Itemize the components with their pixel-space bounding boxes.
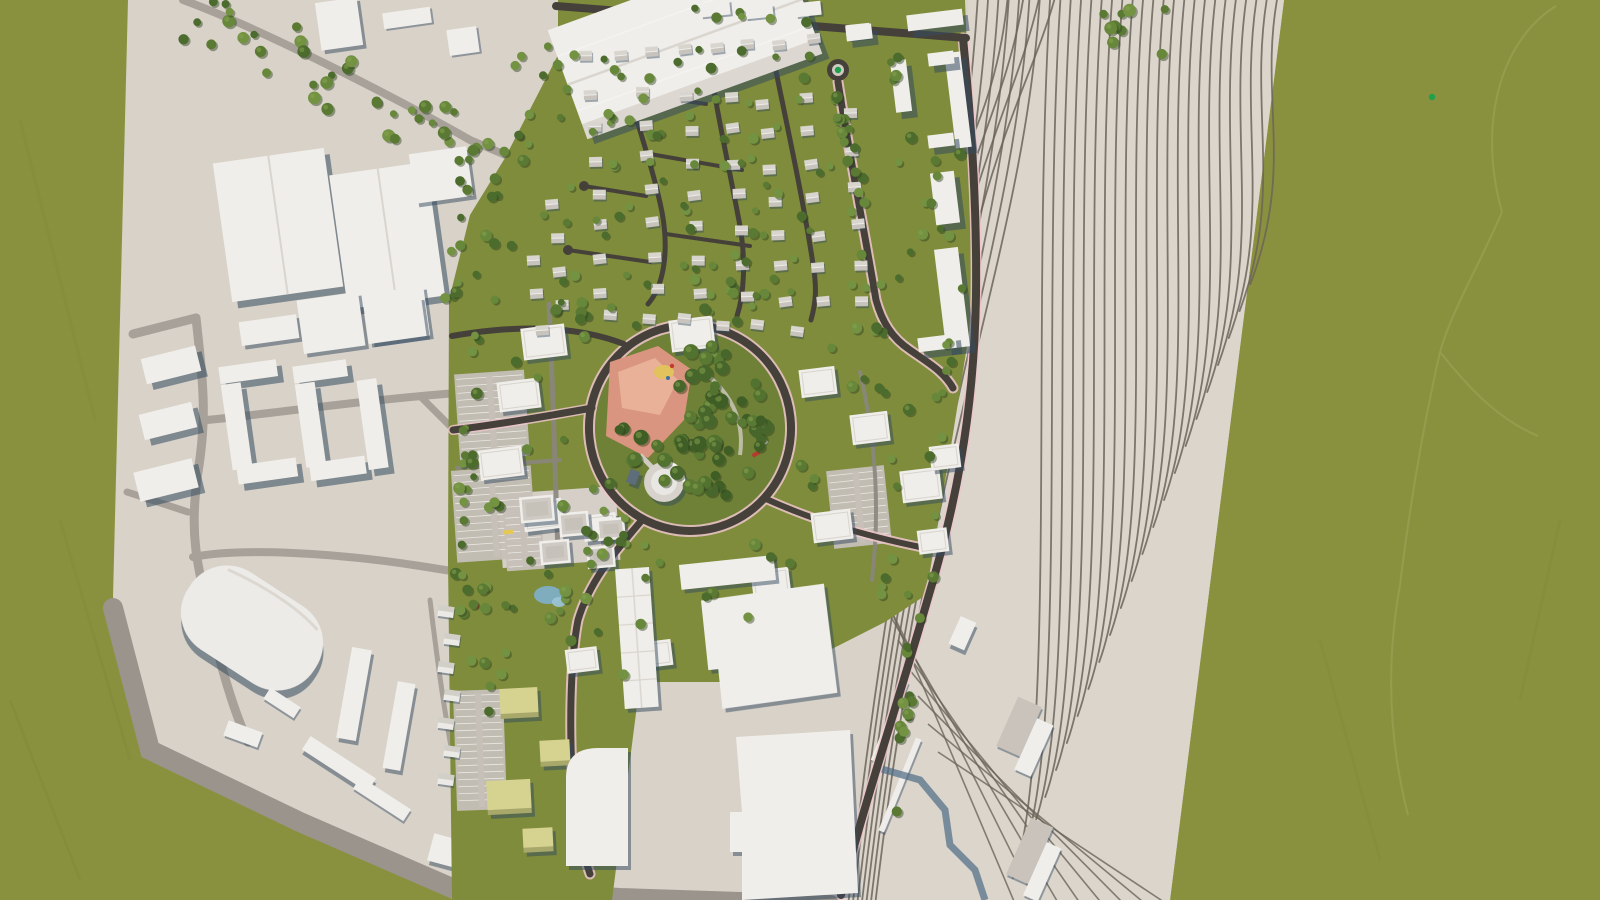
house <box>725 92 739 102</box>
notched-hall <box>730 730 858 900</box>
house <box>552 267 566 278</box>
house <box>805 192 819 203</box>
house <box>732 188 746 198</box>
grid-building <box>849 411 890 445</box>
house <box>651 284 664 294</box>
house <box>677 313 691 324</box>
house <box>648 252 662 262</box>
house <box>716 321 730 331</box>
commercial-building <box>539 539 571 566</box>
house <box>750 319 764 330</box>
grid-building <box>496 378 541 413</box>
house <box>685 126 698 136</box>
house <box>772 39 786 50</box>
house <box>645 184 659 195</box>
industrial-box <box>213 148 343 302</box>
house <box>584 90 597 100</box>
context-house <box>443 633 460 646</box>
context-house <box>443 689 460 702</box>
house <box>755 99 769 110</box>
house <box>614 50 628 61</box>
grid-building <box>899 467 943 504</box>
masterplan-viewport[interactable] <box>0 0 1600 900</box>
context-house <box>437 661 454 674</box>
house <box>854 261 867 271</box>
house <box>807 33 821 44</box>
house <box>679 91 692 101</box>
context-house <box>437 605 454 618</box>
house <box>725 122 739 133</box>
house <box>589 157 602 167</box>
house <box>816 296 830 307</box>
house <box>811 262 825 273</box>
apartment-slab <box>845 23 873 41</box>
roundabout-with-tree <box>827 59 849 81</box>
house <box>693 288 707 299</box>
house <box>771 230 784 240</box>
house <box>735 226 748 236</box>
house <box>855 296 868 306</box>
yellow-building <box>499 687 539 719</box>
context-house <box>437 773 454 786</box>
house <box>579 51 592 61</box>
house <box>800 125 814 136</box>
house <box>639 120 653 131</box>
flat-hall <box>701 583 838 710</box>
house <box>645 216 659 227</box>
house <box>593 190 606 200</box>
house <box>527 255 540 265</box>
house <box>692 256 705 266</box>
house <box>790 326 804 337</box>
house <box>710 42 724 53</box>
house <box>804 159 818 170</box>
context-house <box>443 745 460 758</box>
house <box>761 128 775 139</box>
rounded-corner-hall <box>566 748 628 866</box>
house <box>645 46 659 57</box>
masterplan-render <box>0 0 1600 900</box>
house <box>551 233 564 243</box>
house <box>741 292 754 302</box>
yellow-building <box>486 779 532 815</box>
yellow-building <box>522 827 553 853</box>
house <box>545 199 559 210</box>
house <box>593 253 607 264</box>
grid-building <box>917 527 950 554</box>
house <box>851 218 865 229</box>
commercial-building <box>519 495 555 524</box>
house <box>642 314 656 325</box>
house <box>530 288 544 298</box>
house <box>687 190 701 201</box>
grid-building <box>810 509 853 544</box>
house <box>678 44 692 55</box>
house <box>535 325 549 336</box>
house <box>762 164 775 174</box>
grid-building <box>565 646 600 674</box>
lone-tree-marker <box>1429 94 1435 100</box>
grid-building <box>798 366 837 398</box>
house <box>774 260 788 271</box>
grid-building <box>477 445 524 480</box>
house <box>778 296 792 307</box>
yellow-building <box>539 739 570 767</box>
context-house <box>437 717 454 730</box>
house <box>593 288 607 298</box>
